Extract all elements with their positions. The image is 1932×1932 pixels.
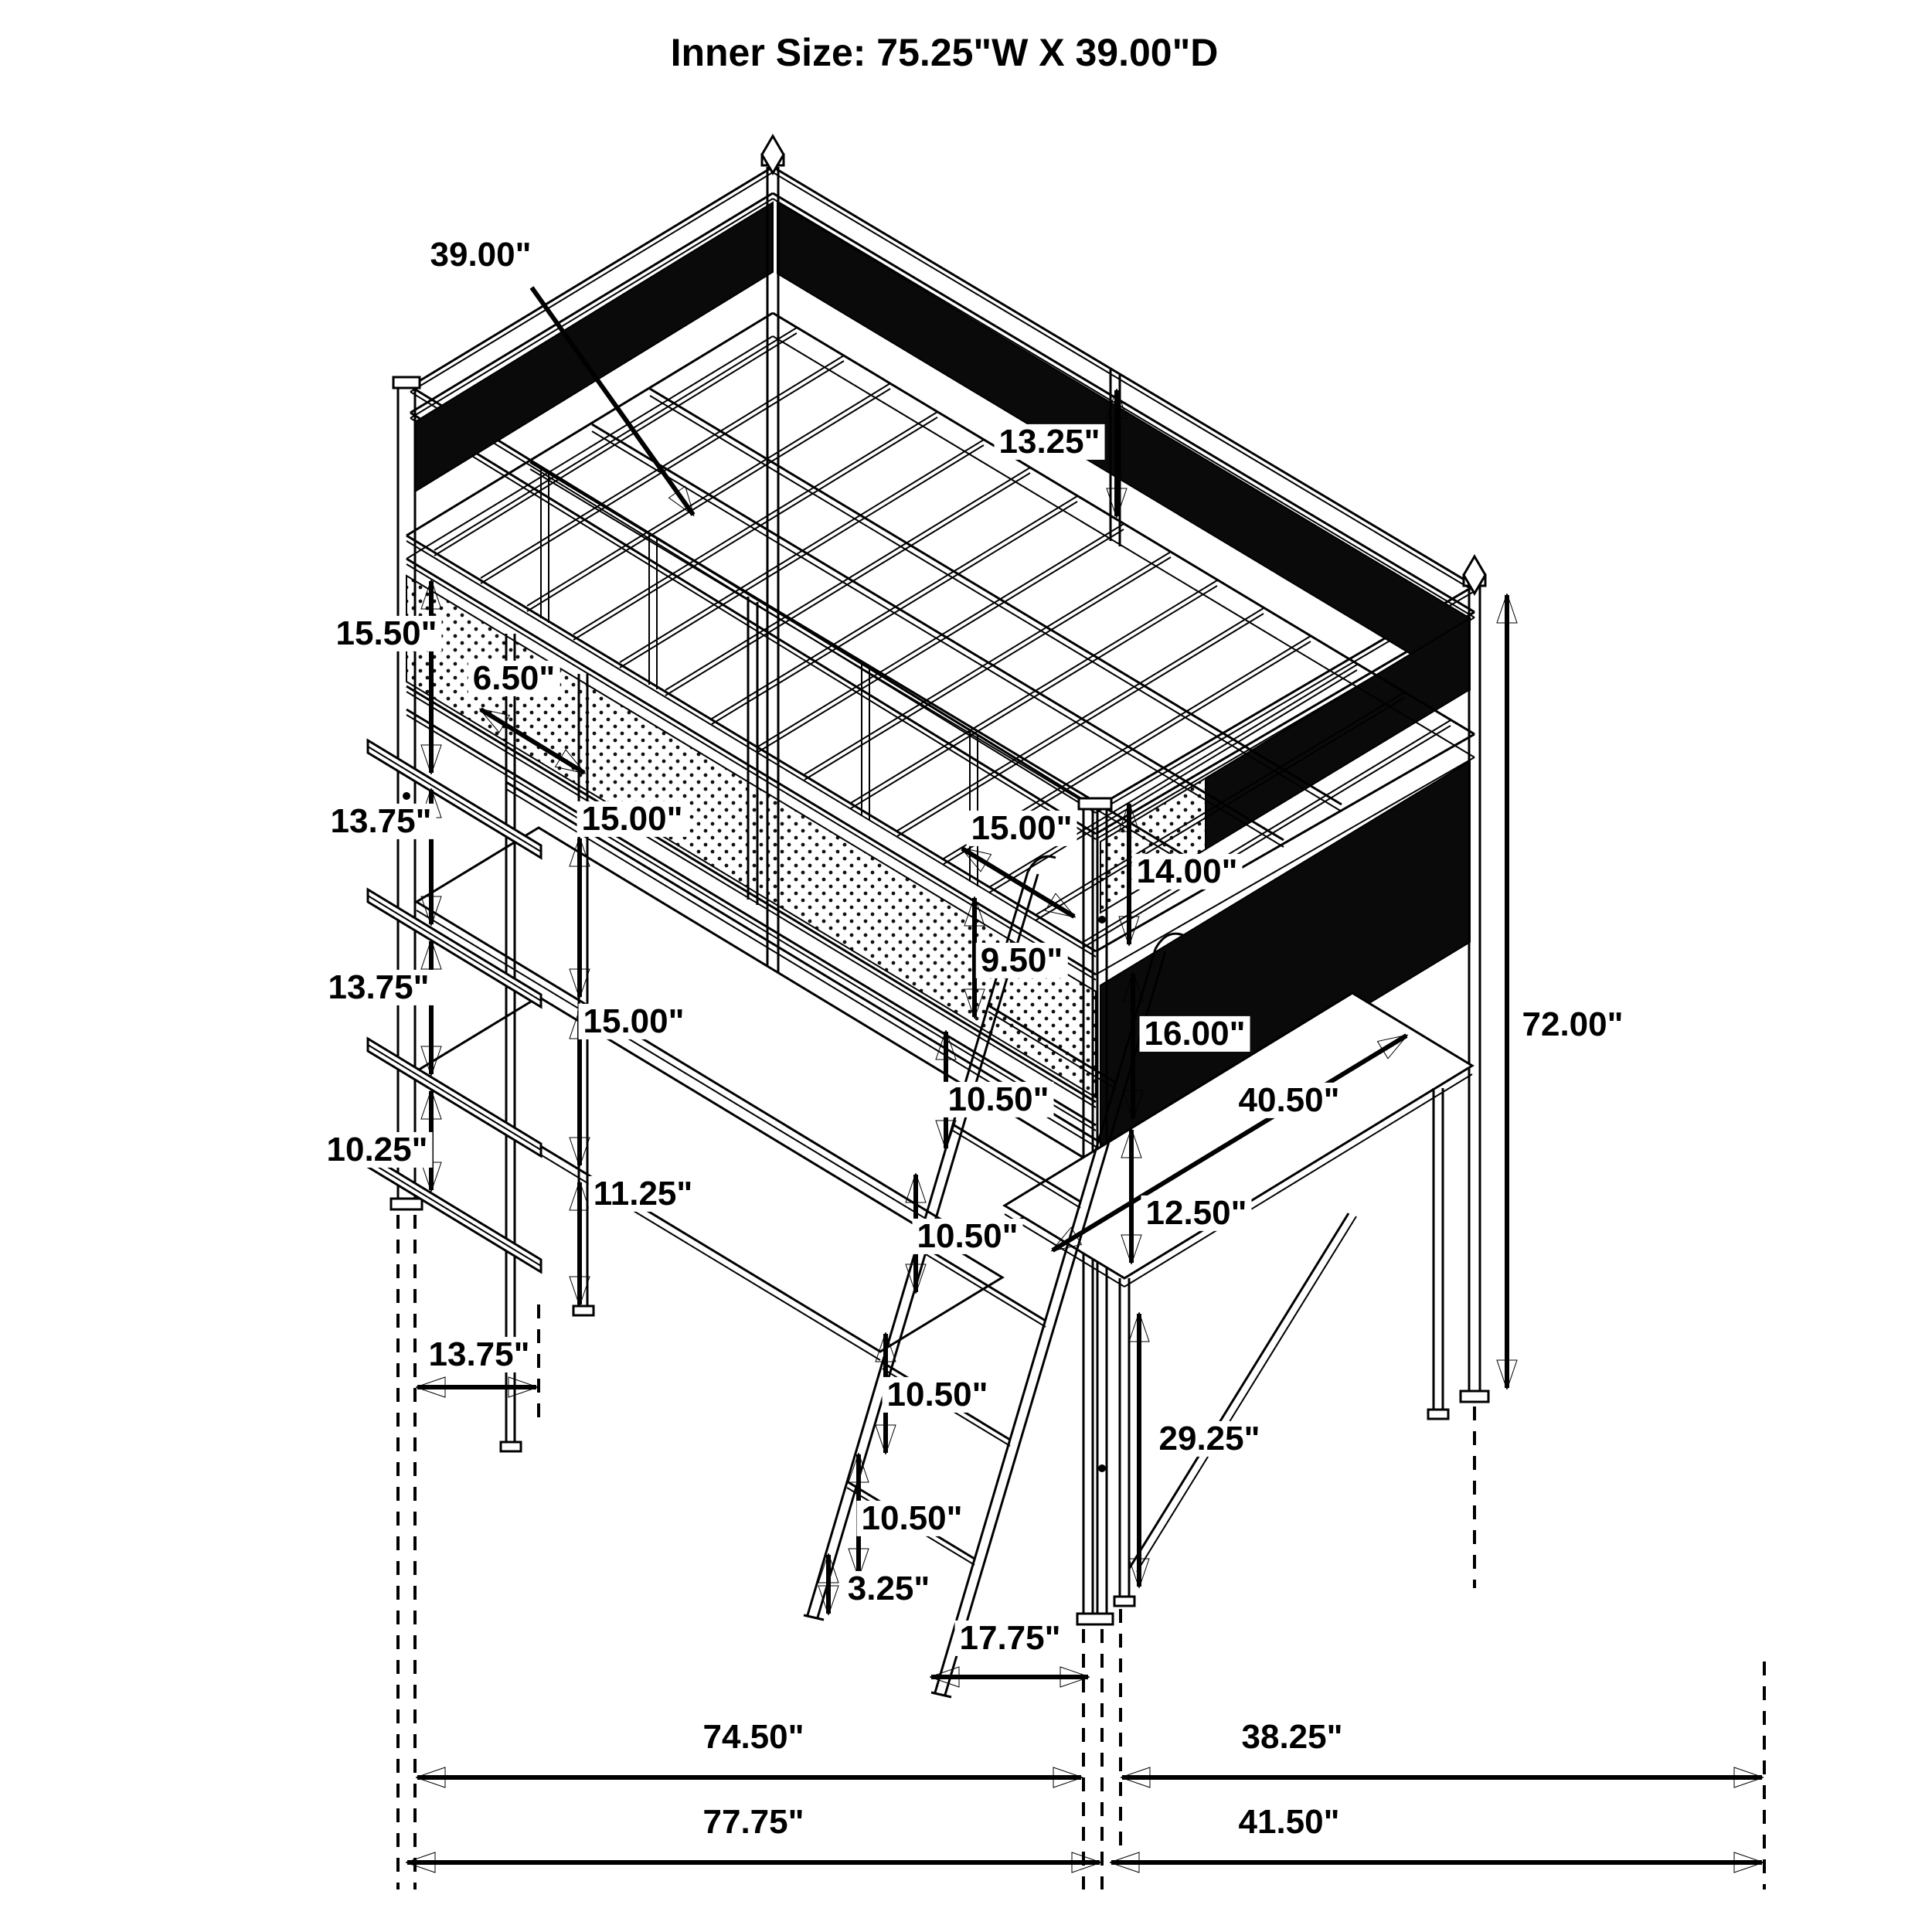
- dim-total-height-72-00: 72.00": [1518, 1007, 1628, 1043]
- dim-depth-38-25: 38.25": [1237, 1719, 1348, 1755]
- dim-desk-gap-15-00-a: 15.00": [577, 801, 688, 837]
- dim-ladder-offset-17-75: 17.75": [955, 1621, 1066, 1656]
- dim-guardrail-13-25: 13.25": [995, 424, 1105, 460]
- dim-post-offset-6-50: 6.50": [468, 661, 560, 696]
- dim-shelf-gap-15-50: 15.50": [332, 616, 442, 651]
- dim-ladder-foot-3-25: 3.25": [843, 1571, 935, 1607]
- dim-desk-clearance-12-50: 12.50": [1141, 1196, 1252, 1231]
- dim-inner-depth-39: 39.00": [426, 237, 536, 273]
- dim-rung-gap-10-50-2: 10.50": [913, 1219, 1023, 1254]
- dim-shelf-gap-13-75-b: 13.75": [324, 970, 434, 1005]
- dim-width-77-75: 77.75": [699, 1804, 809, 1840]
- dim-desk-reach-40-50: 40.50": [1234, 1083, 1345, 1118]
- dim-shelf-depth-13-75: 13.75": [424, 1337, 535, 1372]
- dim-ladder-top-9-50: 9.50": [976, 943, 1068, 978]
- diagram-title: Inner Size: 75.25"W X 39.00"D: [671, 30, 1219, 75]
- dim-desk-height-29-25: 29.25": [1155, 1421, 1265, 1457]
- dim-width-74-50: 74.50": [699, 1719, 809, 1755]
- dim-strut-11-25: 11.25": [589, 1176, 698, 1212]
- dim-deck-edge-15-00: 15.00": [967, 811, 1077, 846]
- dim-shelf-gap-13-75-a: 13.75": [326, 804, 437, 839]
- loft-bed-dimension-diagram: Inner Size: 75.25"W X 39.00"D 39.00" 13.…: [0, 0, 1932, 1932]
- dim-rung-gap-10-50-3: 10.50": [883, 1377, 993, 1413]
- dim-depth-41-50: 41.50": [1234, 1804, 1345, 1840]
- dim-shelf-gap-10-25: 10.25": [322, 1132, 433, 1168]
- dim-end-panel-14-00: 14.00": [1132, 854, 1243, 889]
- dim-rung-gap-10-50-1: 10.50": [944, 1082, 1054, 1117]
- dim-end-panel-16-00: 16.00": [1140, 1016, 1250, 1052]
- dim-rung-gap-10-50-4: 10.50": [857, 1501, 968, 1536]
- projection-lines: [398, 1215, 1764, 1889]
- dim-desk-gap-15-00-b: 15.00": [579, 1004, 689, 1039]
